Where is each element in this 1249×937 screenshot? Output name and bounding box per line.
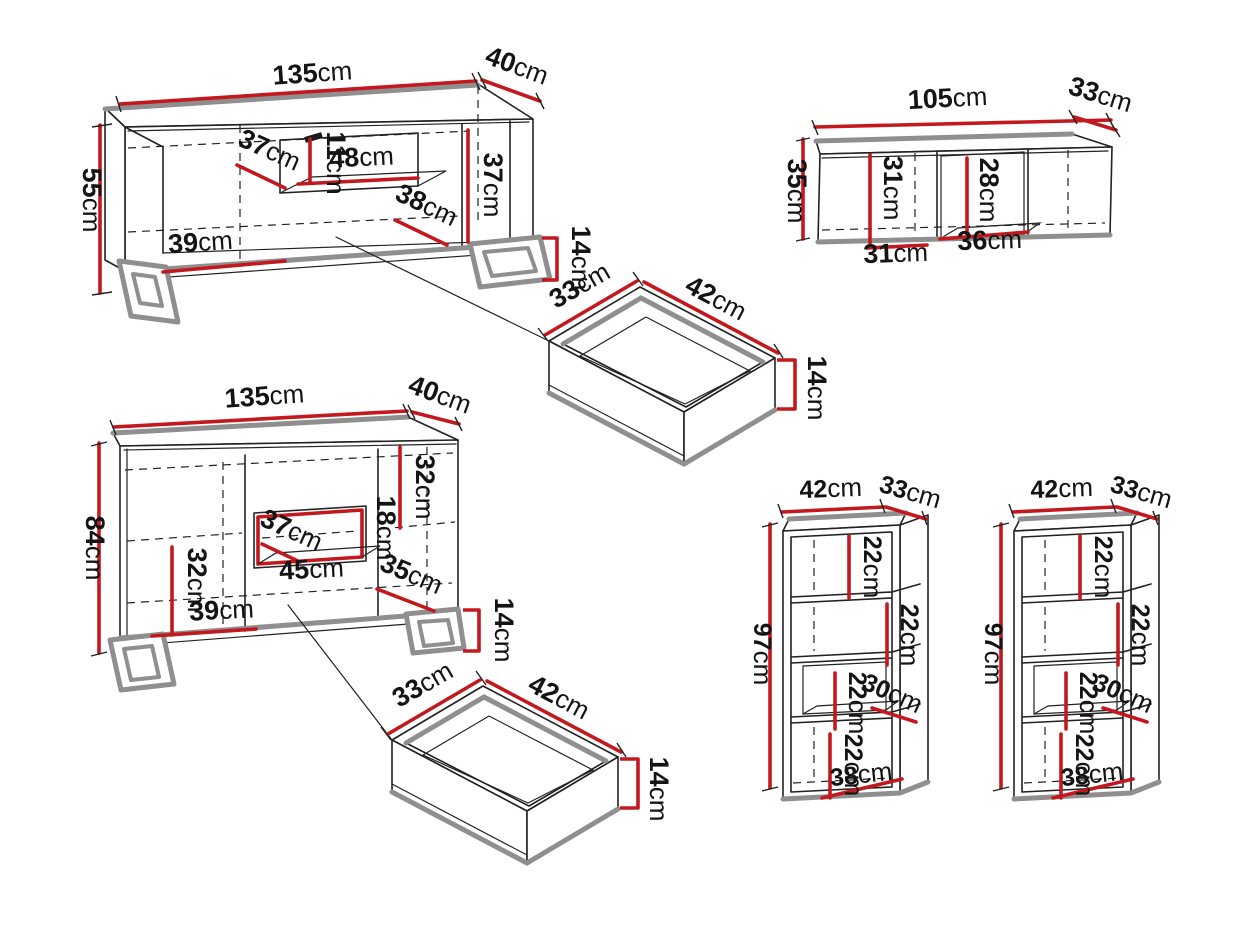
sideboard-width-label: 135cm bbox=[224, 378, 306, 413]
wall-cabinet-middle-inner-height-label: 28cm bbox=[974, 158, 1004, 223]
wall-cabinet-left-inner-width-label: 31cm bbox=[863, 237, 929, 269]
drawer-top-height-label: 14cm bbox=[802, 356, 832, 421]
bookcase-right-compartment1-label: 22cm bbox=[1089, 536, 1119, 598]
sideboard-niche-width-label: 45cm bbox=[278, 552, 344, 585]
wall-cabinet-depth-label: 33cm bbox=[1065, 71, 1136, 119]
furniture-dimension-diagram: 135cm 40cm 55cm 37cm 11cm 48cm 37cm 38cm… bbox=[0, 0, 1249, 937]
bookcase-right-height-label: 97cm bbox=[979, 623, 1009, 685]
bookcase-left-compartment1-label: 22cm bbox=[858, 536, 888, 598]
sideboard-drawer-connector bbox=[288, 605, 392, 740]
wall-cabinet-height-label: 35cm bbox=[782, 159, 812, 224]
drawer-bottom-depth-label: 33cm bbox=[387, 655, 458, 713]
wall-cabinet-left-inner-height-label: 31cm bbox=[878, 156, 908, 221]
sideboard-right-inner-height-label: 32cm bbox=[410, 455, 440, 520]
bookcase-left-height-label: 97cm bbox=[748, 623, 778, 685]
bookcase-left-compartment2-label: 22cm bbox=[895, 604, 925, 666]
furniture-dimension-sheet: 135cm 40cm 55cm 37cm 11cm 48cm 37cm 38cm… bbox=[0, 0, 1249, 937]
wall-cabinet-width-label: 105cm bbox=[907, 81, 988, 115]
sideboard-height-label: 84cm bbox=[80, 516, 110, 581]
sideboard-leg-height-label: 14cm bbox=[489, 598, 519, 663]
tv-stand-left-inner-width-label: 39cm bbox=[167, 225, 234, 259]
sideboard-drawing bbox=[91, 404, 479, 690]
bookcase-left-width-label: 42cm bbox=[799, 472, 862, 504]
wall-cabinet-middle-inner-width-label: 36cm bbox=[957, 224, 1023, 256]
tv-stand-height-label: 55cm bbox=[77, 168, 107, 233]
bookcase-right-compartment2-label: 22cm bbox=[1126, 604, 1156, 666]
tv-stand-right-inner-height-label: 37cm bbox=[478, 153, 508, 218]
tv-stand-width-label: 135cm bbox=[272, 55, 354, 90]
bookcase-right-width-label: 42cm bbox=[1030, 472, 1093, 504]
drawer-bottom-height-label: 14cm bbox=[644, 757, 674, 822]
sideboard-left-inner-width-label: 39cm bbox=[188, 593, 254, 626]
tv-stand-niche-width-label: 48cm bbox=[328, 140, 394, 173]
